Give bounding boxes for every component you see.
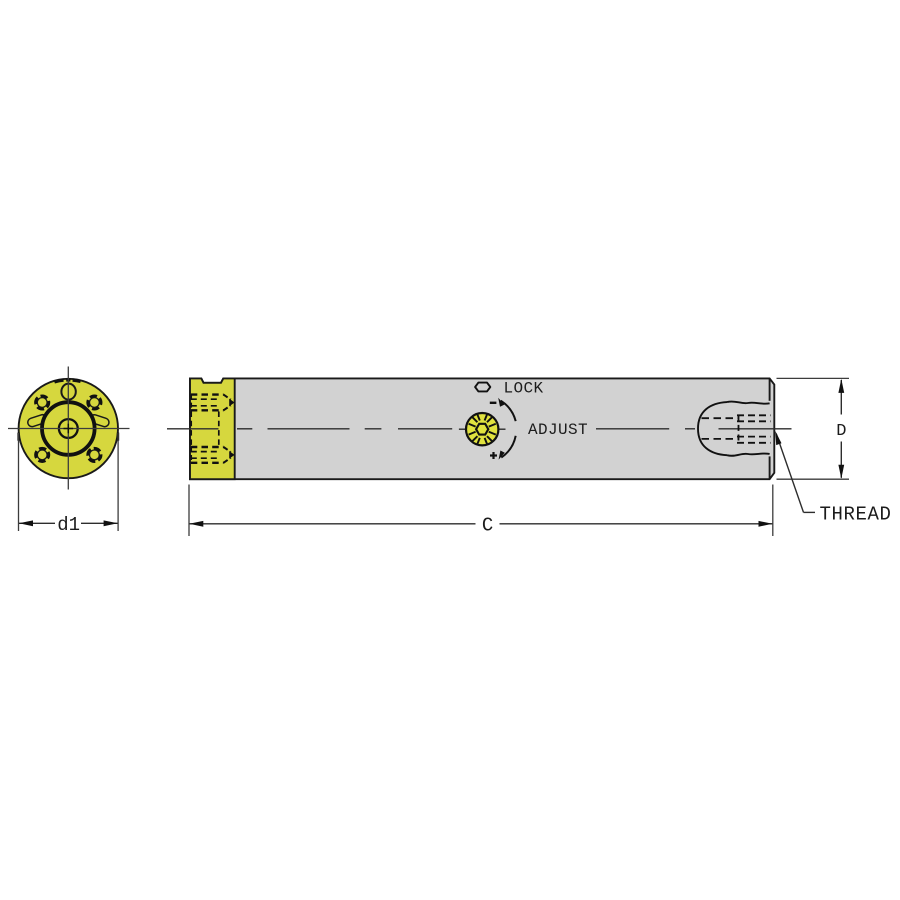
svg-text:LOCK: LOCK xyxy=(504,379,544,397)
svg-text:THREAD: THREAD xyxy=(820,504,892,526)
svg-text:d1: d1 xyxy=(57,514,80,536)
svg-text:D: D xyxy=(836,422,846,441)
svg-text:ADJUST: ADJUST xyxy=(528,421,588,439)
svg-text:C: C xyxy=(482,514,493,536)
